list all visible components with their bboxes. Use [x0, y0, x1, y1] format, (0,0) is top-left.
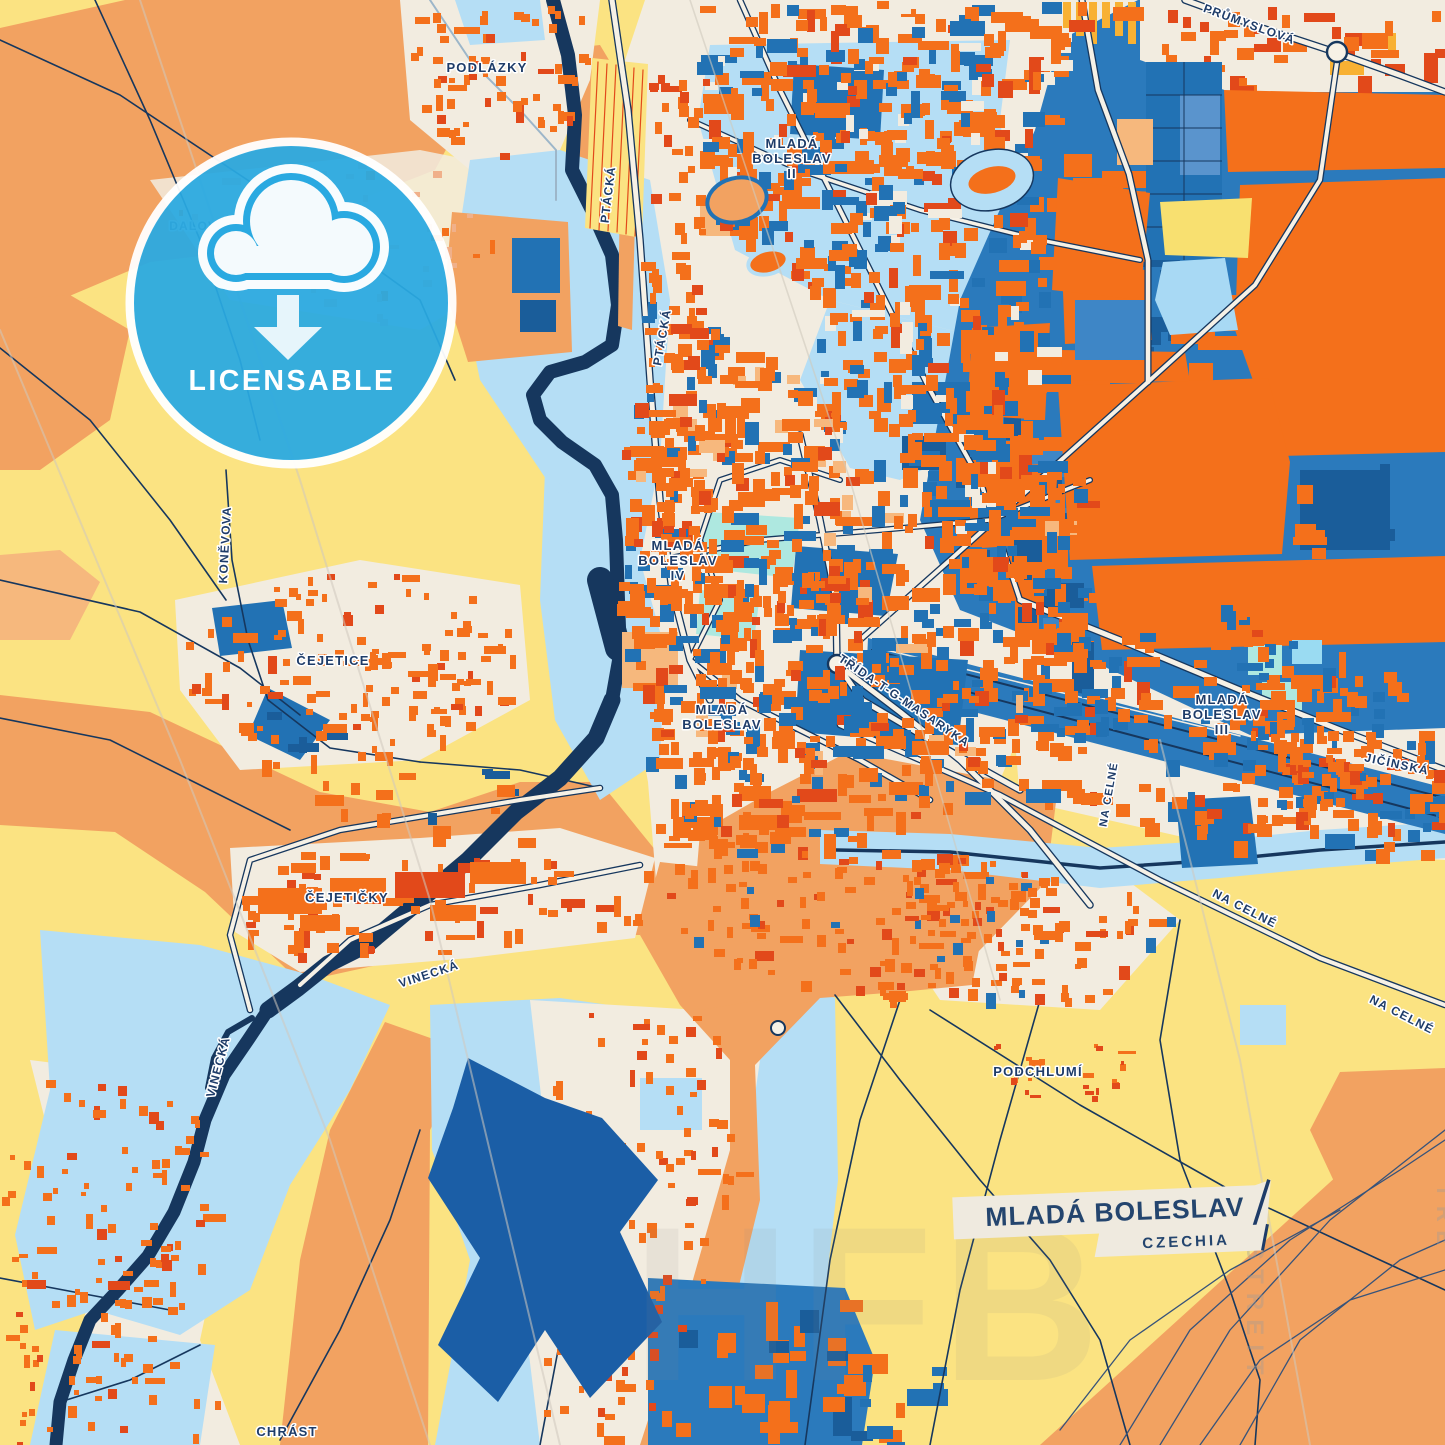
- svg-text:CZECHIA: CZECHIA: [1142, 1232, 1230, 1253]
- svg-text:BOLESLAV: BOLESLAV: [682, 717, 761, 732]
- svg-text:ČEJETIČKY: ČEJETIČKY: [305, 890, 389, 905]
- svg-text:PODLÁZKY: PODLÁZKY: [446, 60, 527, 75]
- svg-text:LICENSABLE: LICENSABLE: [188, 365, 395, 397]
- svg-text:IV: IV: [671, 568, 686, 583]
- svg-text:III: III: [1215, 722, 1229, 737]
- svg-text:T R E: T R E: [1432, 1184, 1445, 1246]
- svg-text:MLADÁ: MLADÁ: [1196, 692, 1249, 707]
- svg-text:MLADÁ: MLADÁ: [652, 538, 705, 553]
- svg-text:BOLESLAV: BOLESLAV: [638, 553, 717, 568]
- svg-text:MLADÁ: MLADÁ: [766, 136, 819, 151]
- svg-text:ČEJETICE: ČEJETICE: [296, 653, 369, 668]
- svg-text:MLADÁ: MLADÁ: [696, 702, 749, 717]
- svg-text:BOLESLAV: BOLESLAV: [1182, 707, 1261, 722]
- svg-text:BOLESLAV: BOLESLAV: [752, 151, 831, 166]
- svg-text:CHRÁST: CHRÁST: [256, 1424, 317, 1439]
- svg-text:S T R E I T: S T R E I T: [1241, 1244, 1268, 1376]
- svg-text:PODCHLUMÍ: PODCHLUMÍ: [993, 1064, 1083, 1079]
- svg-text:II: II: [787, 166, 797, 181]
